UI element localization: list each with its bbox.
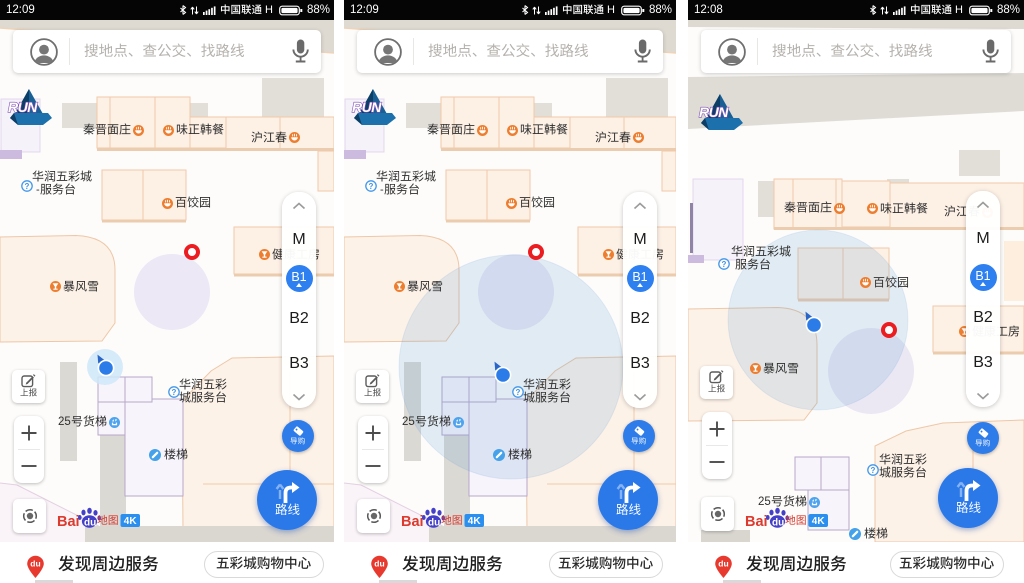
svg-text:du: du	[374, 559, 384, 569]
svg-text:RUN: RUN	[352, 99, 382, 115]
svg-text:4K: 4K	[124, 516, 138, 527]
svg-text:4K: 4K	[468, 516, 482, 527]
svg-text:du: du	[30, 559, 40, 569]
svg-text:du: du	[718, 559, 728, 569]
svg-text:RUN: RUN	[8, 99, 38, 115]
svg-text:du: du	[428, 518, 440, 529]
svg-text:Bai: Bai	[401, 514, 424, 530]
svg-text:?: ?	[721, 259, 726, 268]
svg-text:Bai: Bai	[745, 514, 768, 530]
svg-text:?: ?	[870, 465, 875, 474]
svg-text:?: ?	[369, 182, 374, 191]
svg-text:du: du	[772, 518, 784, 529]
svg-text:RUN: RUN	[699, 104, 729, 120]
svg-text:Bai: Bai	[57, 514, 80, 530]
svg-text:du: du	[84, 518, 96, 529]
svg-text:?: ?	[25, 182, 30, 191]
svg-text:?: ?	[171, 387, 176, 396]
svg-text:4K: 4K	[812, 516, 826, 527]
